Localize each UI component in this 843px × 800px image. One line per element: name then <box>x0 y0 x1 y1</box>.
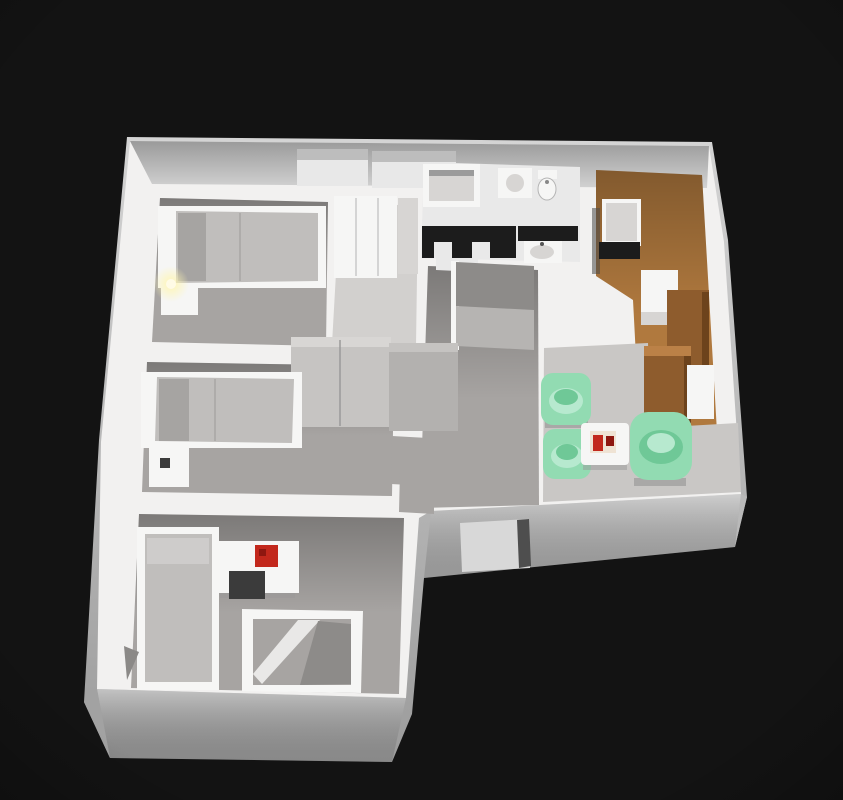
floor-plan-canvas <box>0 0 843 800</box>
floor-plan-render <box>0 0 843 800</box>
vignette-overlay <box>0 0 843 800</box>
